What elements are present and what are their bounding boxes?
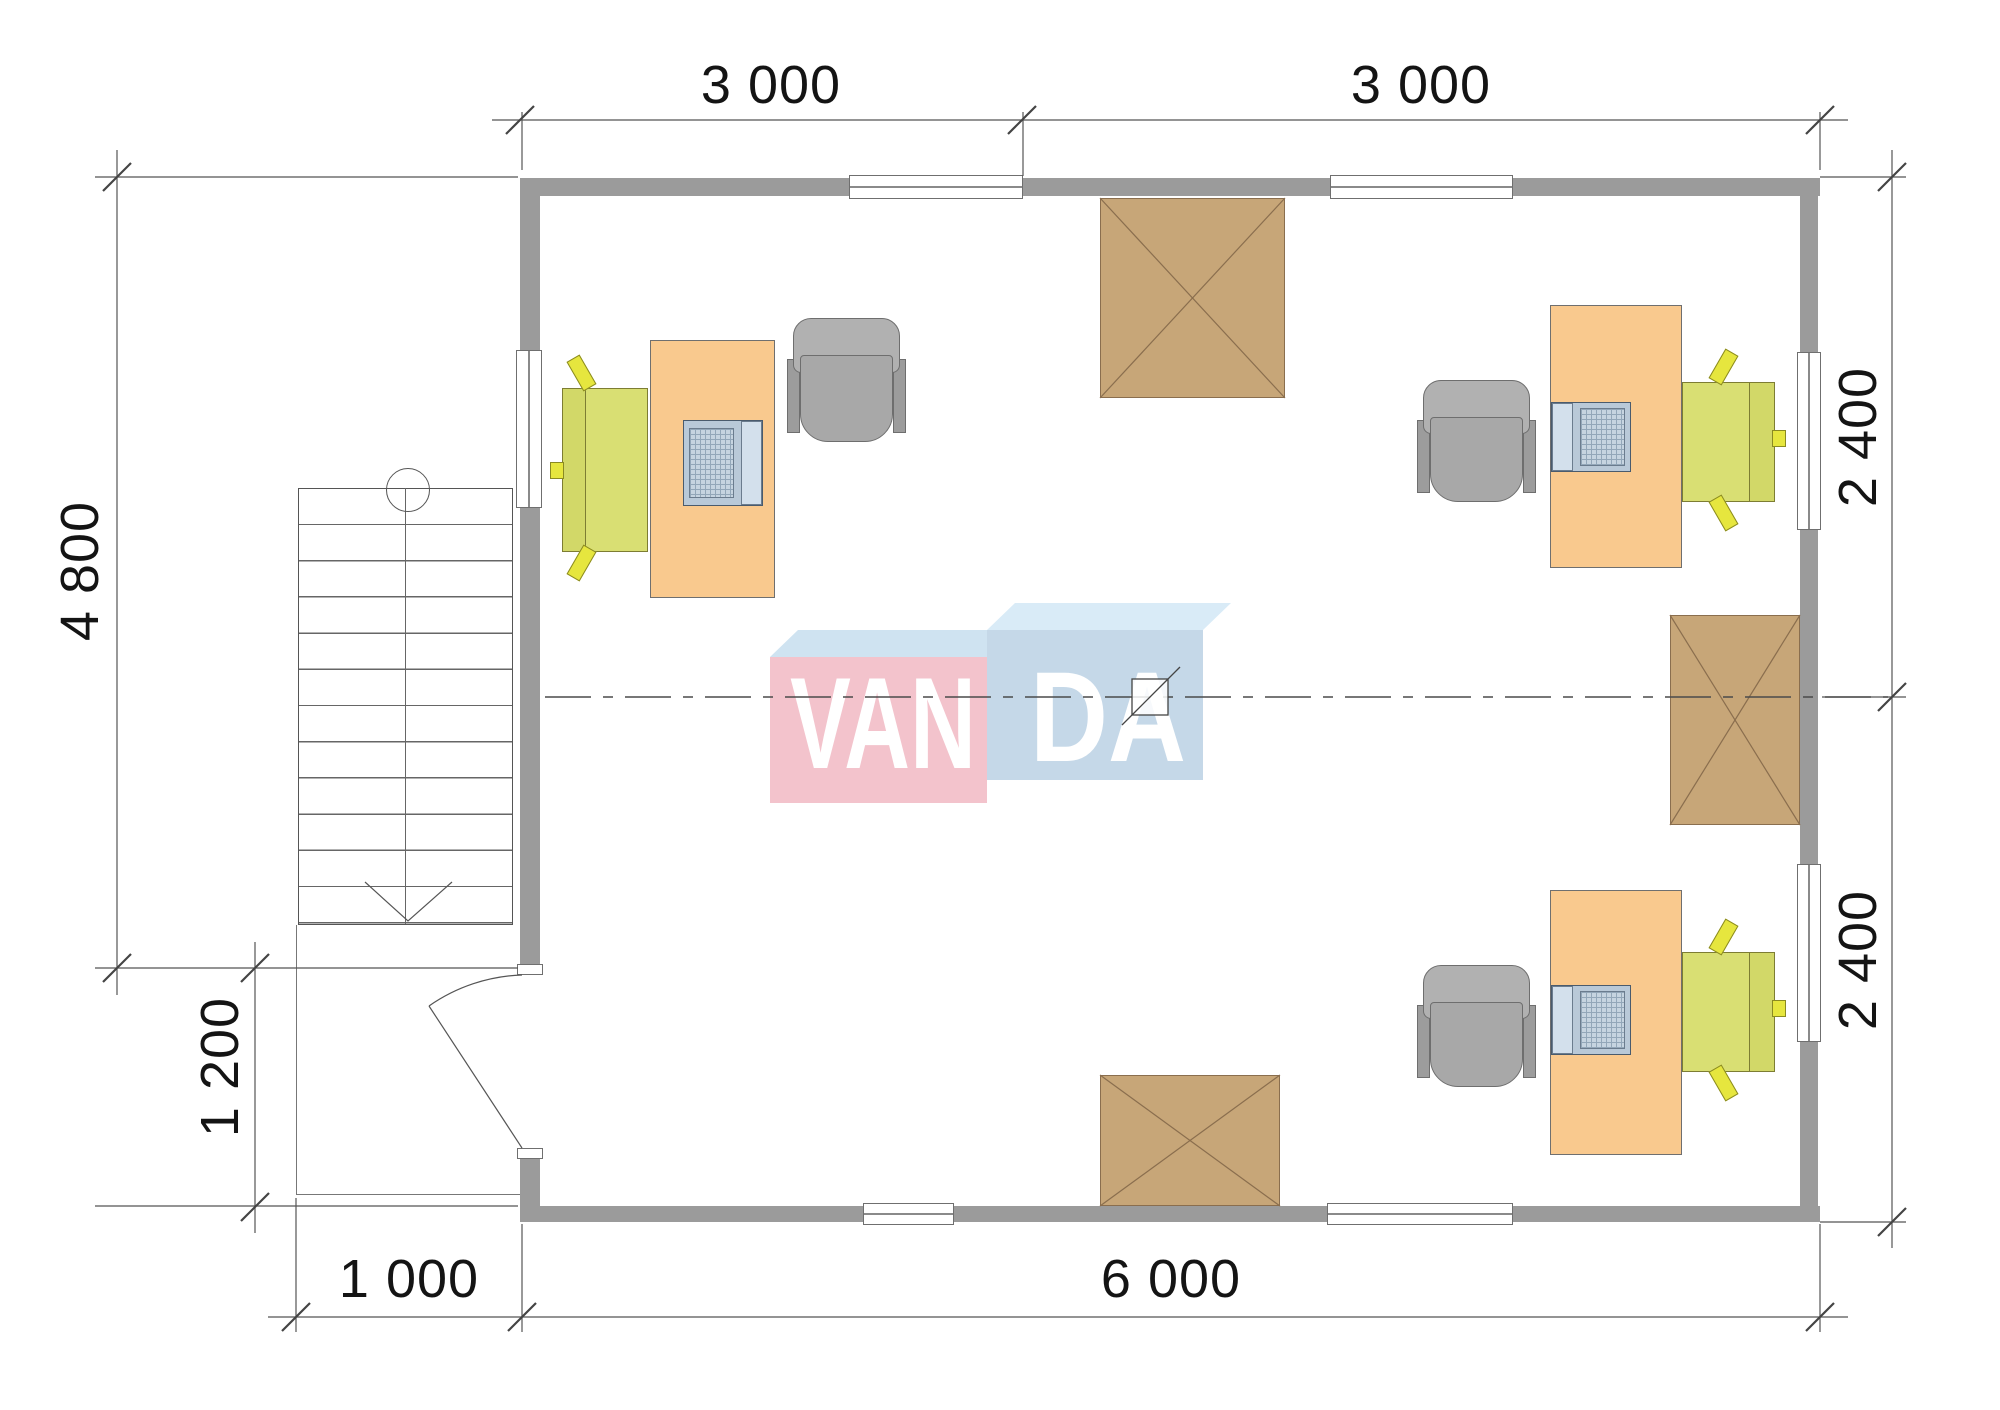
axis-square-marker [1122, 667, 1180, 725]
floor-plan-canvas: VAN DA [0, 0, 2000, 1410]
dim-label-top-right: 3 000 [1351, 54, 1491, 116]
door-leaf [429, 1006, 522, 1148]
dim-label-right-lower: 2 400 [1827, 890, 1889, 1030]
dimension-lines [117, 120, 1892, 1317]
extension-lines [95, 112, 1906, 1332]
dim-label-top-left: 3 000 [701, 54, 841, 116]
dimension-ticks [103, 106, 1906, 1331]
dim-label-left-porch: 1 200 [189, 997, 251, 1137]
stairs-direction-arrow [365, 882, 452, 921]
dim-label-bottom-porch: 1 000 [339, 1248, 479, 1310]
dim-label-bottom-total: 6 000 [1101, 1248, 1241, 1310]
dim-label-left-height: 4 800 [49, 501, 111, 641]
hatch-cross-lines [1100, 198, 1800, 1206]
dim-label-right-upper: 2 400 [1827, 367, 1889, 507]
drawing-lines-overlay [0, 0, 2000, 1410]
door-swing-arc [429, 975, 522, 1006]
